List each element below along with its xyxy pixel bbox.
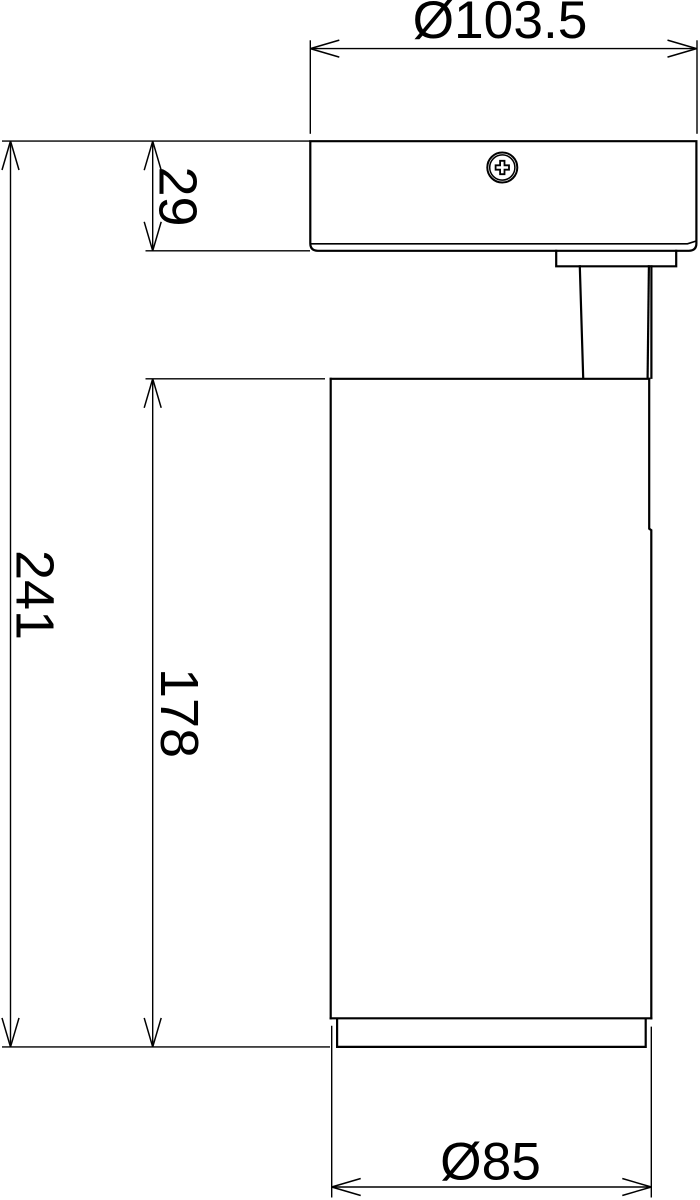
svg-text:Ø85: Ø85 bbox=[440, 1132, 541, 1191]
svg-text:Ø103.5: Ø103.5 bbox=[413, 0, 588, 50]
svg-text:241: 241 bbox=[5, 550, 65, 640]
svg-text:29: 29 bbox=[148, 166, 208, 226]
svg-text:178: 178 bbox=[149, 668, 209, 758]
